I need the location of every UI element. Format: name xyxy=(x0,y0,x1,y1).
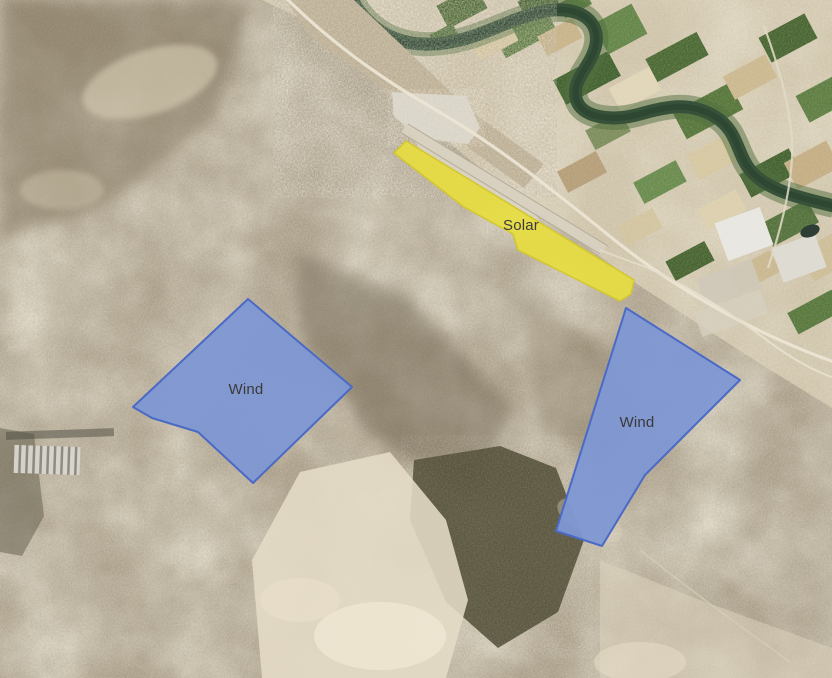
map-viewport[interactable]: SolarWindWind xyxy=(0,0,832,678)
wind-area-east-label: Wind xyxy=(620,414,655,431)
satellite-basemap xyxy=(0,0,832,678)
solar-area-label: Solar xyxy=(503,217,539,234)
wind-area-west-label: Wind xyxy=(229,381,264,398)
satellite-map-canvas: SolarWindWind xyxy=(0,0,832,678)
